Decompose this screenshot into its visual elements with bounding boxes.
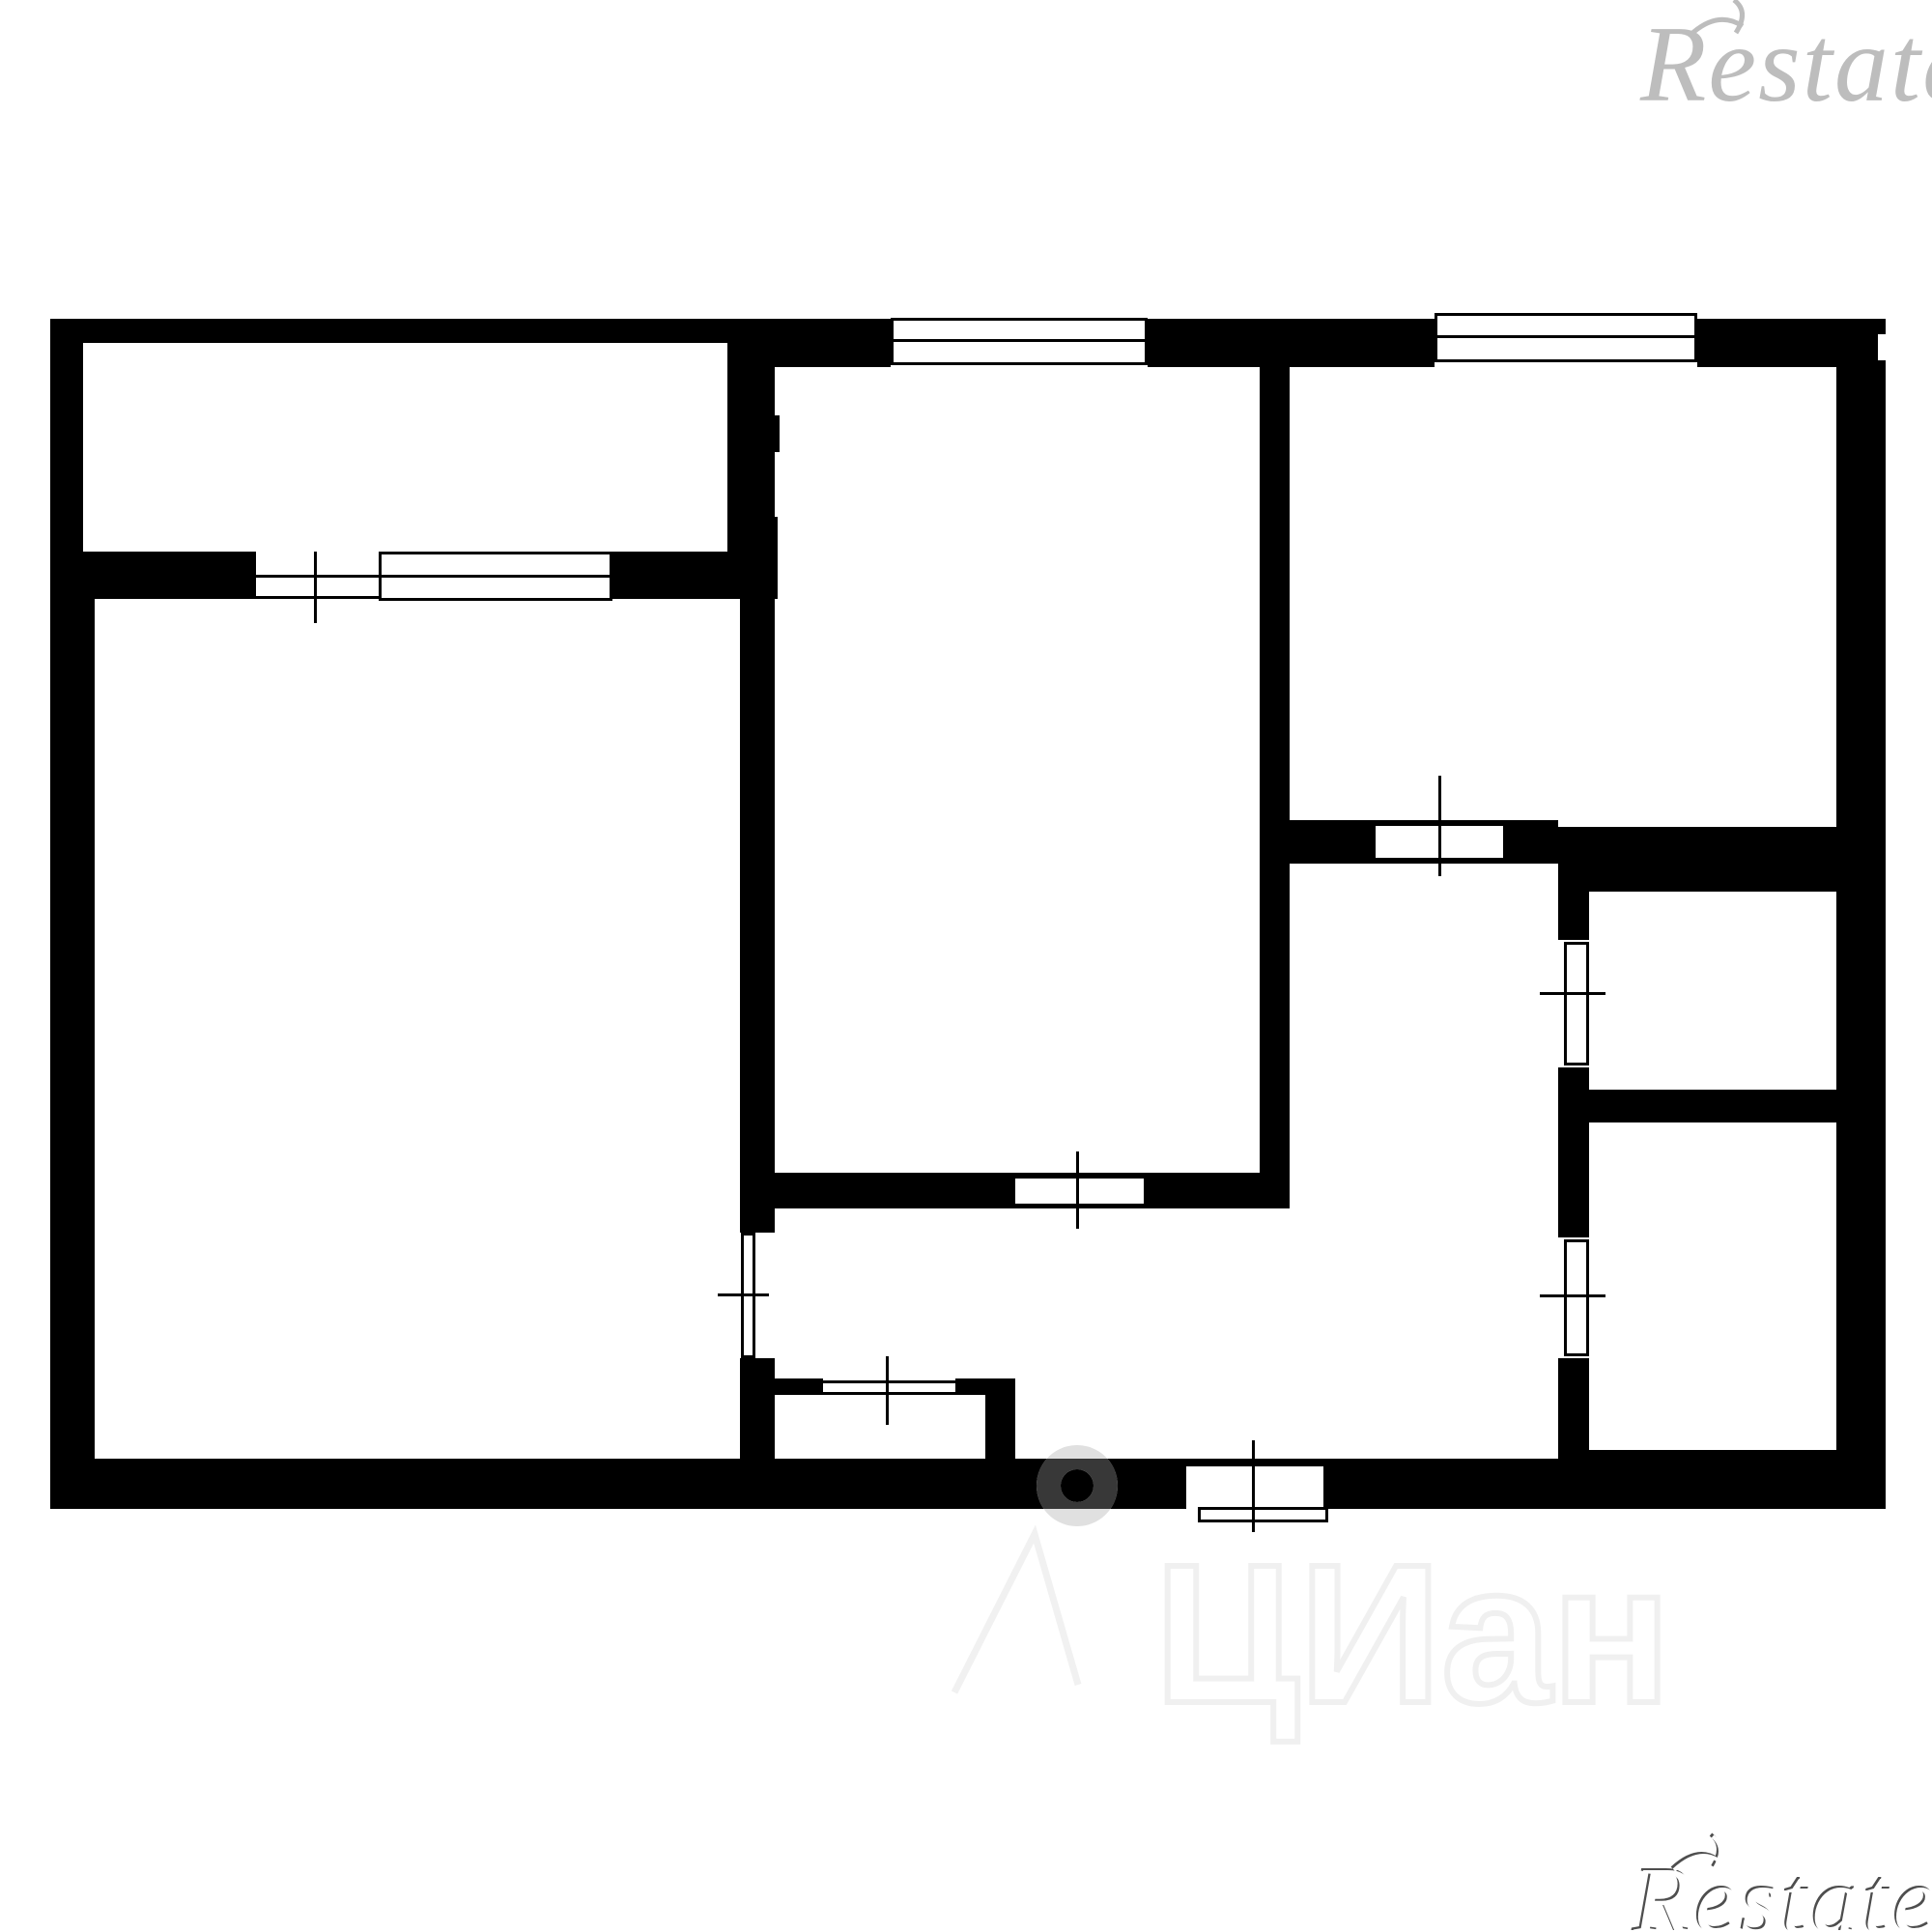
svg-text:Restate: Restate [1633, 1849, 1932, 1932]
svg-text:ЦИан: ЦИан [1154, 1523, 1671, 1745]
svg-text:Restate: Restate [1639, 5, 1932, 125]
